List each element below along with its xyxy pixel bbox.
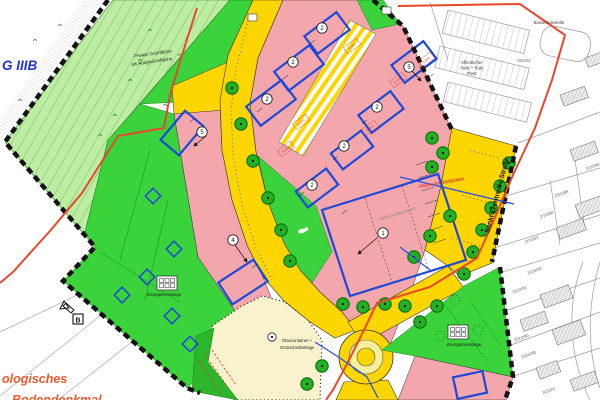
tree-icon bbox=[424, 230, 436, 242]
building-number-badge: 4 bbox=[228, 235, 238, 245]
building-number-badge: 2 bbox=[372, 102, 382, 112]
archaeology-note-1: ologisches bbox=[2, 372, 67, 386]
recycling-label-2: Grünschnittanlage bbox=[280, 345, 315, 350]
park-ride-label-2: Park + Ride bbox=[460, 66, 484, 71]
tree-icon bbox=[426, 132, 438, 144]
tree-icon bbox=[426, 161, 438, 173]
building-number-badge: 1 bbox=[378, 228, 388, 238]
container-symbol-icon bbox=[268, 333, 276, 341]
recycling-label-1: Glascontainer + bbox=[282, 338, 313, 343]
building-number-badge: 5 bbox=[197, 127, 207, 137]
zone-class-label: G IIIB bbox=[2, 58, 38, 73]
building-number-badge: 2 bbox=[288, 57, 298, 67]
tree-icon bbox=[262, 192, 274, 204]
archaeology-note-2: Bodendenkmal bbox=[12, 393, 102, 400]
building-number-badge: 5 bbox=[404, 62, 414, 72]
allotment-symbol-icon bbox=[448, 325, 468, 339]
building-number-badge: 2 bbox=[262, 94, 272, 104]
bus-turnaround-label: Buswendestelle bbox=[534, 20, 565, 25]
sign-icon bbox=[248, 14, 257, 21]
park-ride-label-3: Platz bbox=[467, 71, 477, 76]
tree-icon bbox=[235, 118, 247, 130]
allotments-right-label: Kleingartenanlage bbox=[447, 342, 482, 347]
tree-icon bbox=[247, 155, 259, 167]
section-marker-label: B bbox=[75, 318, 80, 325]
tree-icon bbox=[316, 360, 328, 372]
tree-icon bbox=[399, 300, 411, 312]
sign-icon bbox=[382, 7, 391, 14]
tree-icon bbox=[431, 300, 443, 312]
tree-icon bbox=[437, 147, 449, 159]
building-number-badge: 2 bbox=[307, 180, 317, 190]
plan-viewport: B 0,4/IV 0,4/IV 0,4/III 0,4/IV 0,4/III 0… bbox=[0, 0, 600, 400]
park-ride-label-1: öffentlicher bbox=[461, 60, 483, 65]
allotments-left-label: Kleingartenanlage bbox=[147, 292, 182, 297]
allotment-symbol-icon bbox=[157, 276, 177, 290]
tree-icon bbox=[357, 301, 369, 313]
building-number-badge: 2 bbox=[317, 23, 327, 33]
tree-icon bbox=[414, 316, 426, 328]
tree-icon bbox=[337, 298, 349, 310]
site-development-plan: B 0,4/IV 0,4/IV 0,4/III 0,4/IV 0,4/III 0… bbox=[0, 0, 600, 400]
tree-icon bbox=[444, 210, 456, 222]
building-number-badge: 2 bbox=[339, 141, 349, 151]
tree-icon bbox=[301, 378, 313, 390]
tree-icon bbox=[284, 255, 296, 267]
tree-icon bbox=[275, 224, 287, 236]
tree-icon bbox=[226, 82, 238, 94]
roundabout-island bbox=[357, 348, 375, 366]
parcel-number: 5324/3 bbox=[517, 58, 531, 63]
